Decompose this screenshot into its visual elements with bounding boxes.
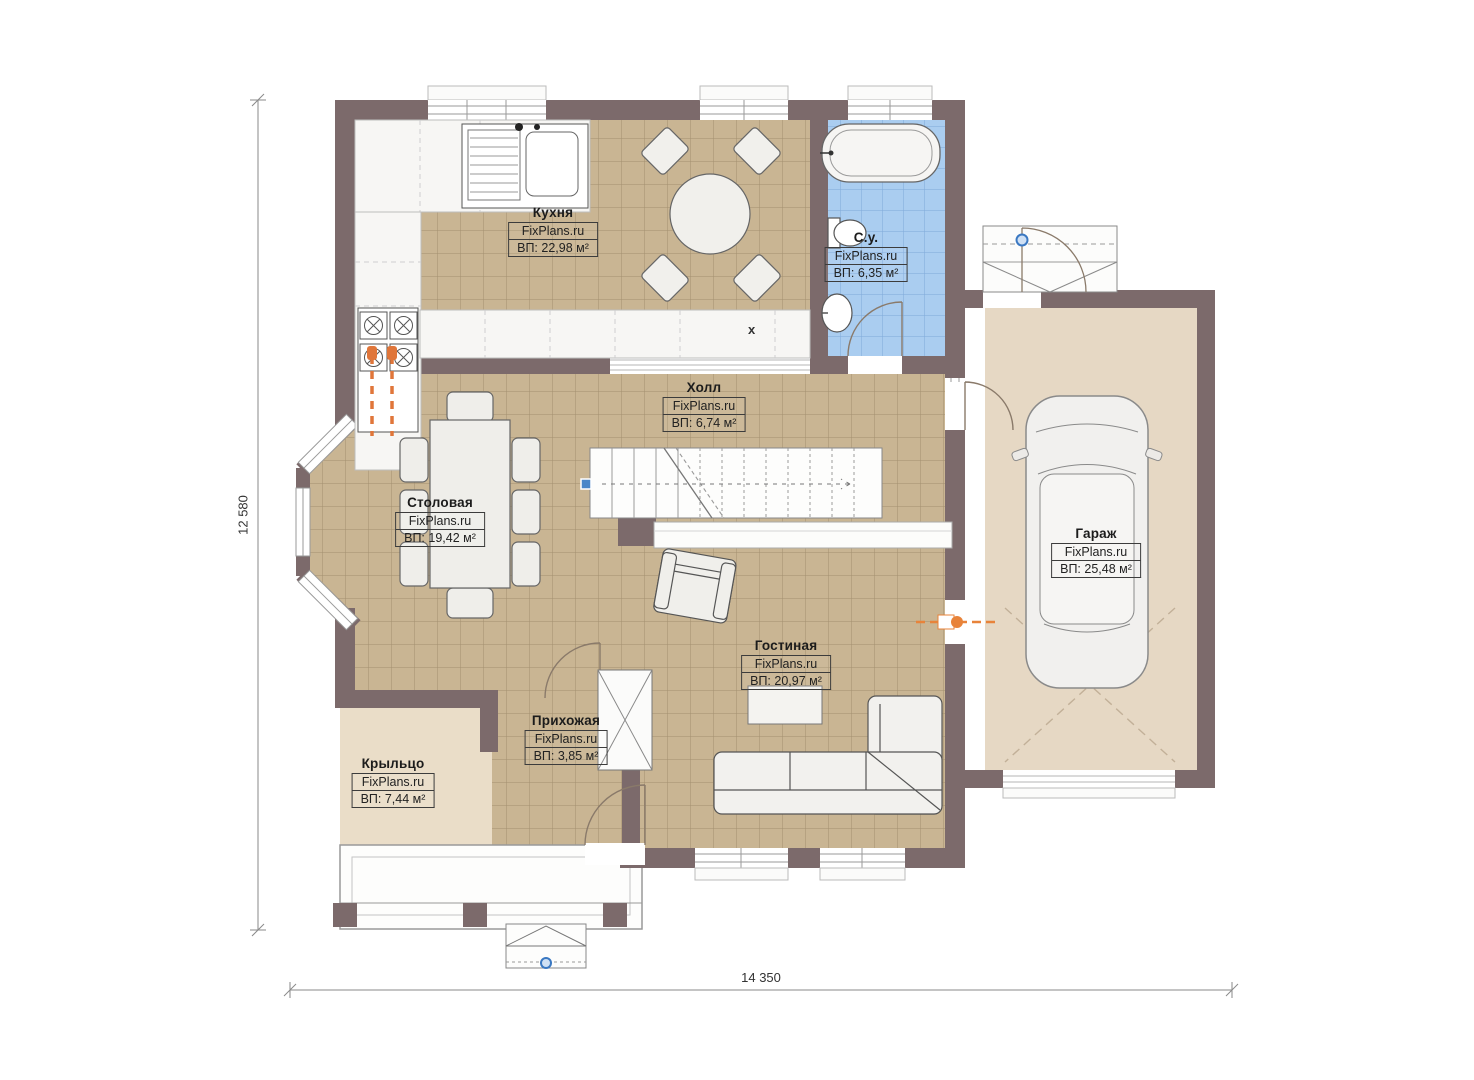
armchair-icon <box>653 548 737 624</box>
room-label-bathroom: С.у. FixPlans.ru ВП: 6,35 м² <box>825 230 908 282</box>
coffee-table-icon <box>748 686 822 724</box>
watermark: FixPlans.ru <box>352 773 435 791</box>
watermark: FixPlans.ru <box>525 730 608 748</box>
room-area: ВП: 7,44 м² <box>352 791 435 808</box>
stair-partition <box>654 522 952 548</box>
dimension-width: 14 350 <box>741 970 781 985</box>
room-name: Кухня <box>508 205 598 220</box>
door-opening <box>585 843 645 865</box>
room-area: ВП: 3,85 м² <box>525 748 608 765</box>
room-label-garage: Гараж FixPlans.ru ВП: 25,48 м² <box>1051 526 1141 578</box>
door-opening <box>983 292 1041 308</box>
stove-icon <box>358 308 418 432</box>
bath-sink-icon <box>822 294 852 332</box>
door-opening <box>848 356 902 374</box>
room-name: Гостиная <box>741 638 831 653</box>
room-name: Прихожая <box>525 713 608 728</box>
watermark: FixPlans.ru <box>508 222 598 240</box>
garage-door <box>1003 770 1175 788</box>
kitchen-sink-icon <box>462 123 588 208</box>
room-label-entry: Прихожая FixPlans.ru ВП: 3,85 м² <box>525 713 608 765</box>
watermark: FixPlans.ru <box>825 247 908 265</box>
selection-handle[interactable] <box>1017 235 1028 246</box>
room-name: Гараж <box>1051 526 1141 541</box>
room-name: Крыльцо <box>352 756 435 771</box>
room-area: ВП: 6,74 м² <box>663 415 746 432</box>
window <box>428 100 546 120</box>
floor-plan-canvas <box>0 0 1474 1080</box>
room-label-kitchen: Кухня FixPlans.ru ВП: 22,98 м² <box>508 205 598 257</box>
porch-column <box>603 903 627 927</box>
watermark: FixPlans.ru <box>741 655 831 673</box>
room-label-hall: Холл FixPlans.ru ВП: 6,74 м² <box>663 380 746 432</box>
watermark: FixPlans.ru <box>395 512 485 530</box>
room-name: Холл <box>663 380 746 395</box>
door-opening <box>945 382 965 430</box>
dimension-height: 12 580 <box>236 495 251 535</box>
selection-handle[interactable] <box>541 958 551 968</box>
room-area: ВП: 19,42 м² <box>395 530 485 547</box>
room-name: С.у. <box>825 230 908 245</box>
room-area: ВП: 25,48 м² <box>1051 561 1141 578</box>
side-canopy <box>983 226 1117 292</box>
selection-handle[interactable] <box>581 479 591 489</box>
room-area: ВП: 22,98 м² <box>508 240 598 257</box>
porch-column <box>333 903 357 927</box>
watermark: FixPlans.ru <box>1051 543 1141 561</box>
room-area: ВП: 20,97 м² <box>741 673 831 690</box>
room-label-living: Гостиная FixPlans.ru ВП: 20,97 м² <box>741 638 831 690</box>
bathtub-icon <box>820 124 940 182</box>
counter-mark: x <box>748 322 755 337</box>
room-label-dining: Столовая FixPlans.ru ВП: 19,42 м² <box>395 495 485 547</box>
watermark: FixPlans.ru <box>663 397 746 415</box>
porch-column <box>463 903 487 927</box>
room-area: ВП: 6,35 м² <box>825 265 908 282</box>
floor-plan-page: Кухня FixPlans.ru ВП: 22,98 м² С.у. FixP… <box>0 0 1474 1080</box>
room-name: Столовая <box>395 495 485 510</box>
room-label-porch: Крыльцо FixPlans.ru ВП: 7,44 м² <box>352 756 435 808</box>
